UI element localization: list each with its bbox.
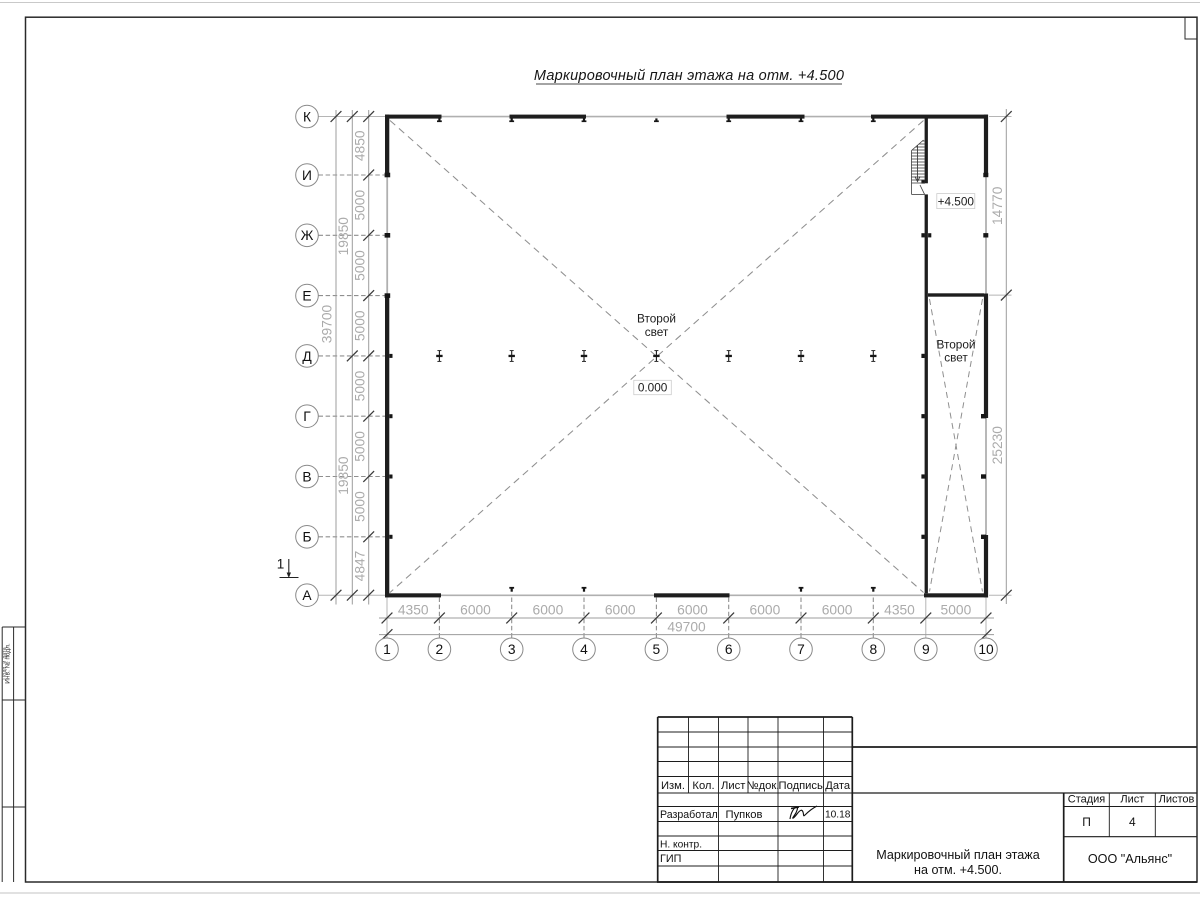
svg-text:Лист: Лист [1120,794,1144,806]
svg-text:10.18: 10.18 [825,810,851,821]
svg-text:6000: 6000 [822,603,853,618]
svg-text:+4.500: +4.500 [938,194,975,208]
svg-text:№док.: №док. [747,780,780,792]
svg-text:5000: 5000 [352,431,367,462]
svg-text:4: 4 [580,642,588,657]
svg-text:4350: 4350 [398,603,429,618]
svg-text:Маркировочный план этажа на от: Маркировочный план этажа на отм. +4.500 [534,68,844,84]
svg-text:14770: 14770 [990,186,1005,225]
svg-text:Лист: Лист [721,780,745,792]
svg-text:Пупков: Пупков [726,809,763,821]
svg-text:4: 4 [1129,815,1136,829]
svg-text:Дата: Дата [825,780,851,792]
svg-text:Е: Е [302,289,311,304]
svg-text:5000: 5000 [352,250,367,281]
svg-text:7: 7 [797,642,805,657]
svg-text:25230: 25230 [990,426,1005,465]
svg-text:ООО "Альянс": ООО "Альянс" [1088,852,1172,866]
svg-text:9: 9 [922,642,930,657]
svg-text:Кол.: Кол. [692,780,714,792]
svg-text:5000: 5000 [352,310,367,341]
svg-text:Ж: Ж [301,228,314,243]
svg-text:Г: Г [303,409,311,424]
svg-text:П: П [1082,815,1091,829]
svg-text:6000: 6000 [677,603,708,618]
svg-text:Разработал: Разработал [660,809,718,821]
svg-text:В: В [302,469,311,484]
svg-text:19850: 19850 [336,217,351,256]
svg-text:49700: 49700 [667,620,706,635]
svg-text:39700: 39700 [320,304,335,343]
svg-text:Изм.: Изм. [661,780,685,792]
svg-text:2: 2 [436,642,444,657]
svg-text:6000: 6000 [533,603,564,618]
svg-text:Подпись: Подпись [779,780,823,792]
svg-text:5000: 5000 [352,190,367,221]
svg-text:8: 8 [869,642,877,657]
svg-text:10: 10 [978,642,994,657]
svg-text:К: К [303,109,311,124]
svg-text:5000: 5000 [941,603,972,618]
svg-text:1: 1 [383,642,391,657]
svg-text:6: 6 [725,642,733,657]
svg-text:0.000: 0.000 [638,381,668,395]
svg-text:А: А [302,588,312,603]
svg-text:Н. контр.: Н. контр. [660,839,702,850]
svg-text:Б: Б [302,530,311,545]
svg-text:4850: 4850 [352,130,367,161]
svg-text:6000: 6000 [750,603,781,618]
svg-text:5000: 5000 [352,491,367,522]
svg-text:5: 5 [653,642,661,657]
svg-text:свет: свет [944,351,968,365]
svg-text:Маркировочный план этажа: Маркировочный план этажа [876,848,1039,862]
svg-text:4847: 4847 [352,551,367,582]
svg-text:3: 3 [508,642,516,657]
svg-text:И: И [302,168,312,183]
svg-text:ГИП: ГИП [660,853,681,865]
svg-text:Второй: Второй [637,312,676,326]
svg-text:5000: 5000 [352,370,367,401]
svg-text:1: 1 [277,557,285,572]
svg-text:свет: свет [645,325,669,339]
svg-text:6000: 6000 [460,603,491,618]
svg-text:4350: 4350 [884,603,915,618]
svg-text:Стадия: Стадия [1068,794,1106,806]
svg-text:Подп. и дата: Подп. и дата [2,646,8,679]
svg-text:19850: 19850 [336,456,351,495]
svg-text:6000: 6000 [605,603,636,618]
svg-text:на отм. +4.500.: на отм. +4.500. [914,863,1002,877]
svg-text:Д: Д [302,349,312,364]
svg-text:Второй: Второй [936,338,975,352]
svg-text:Листов: Листов [1159,794,1195,806]
